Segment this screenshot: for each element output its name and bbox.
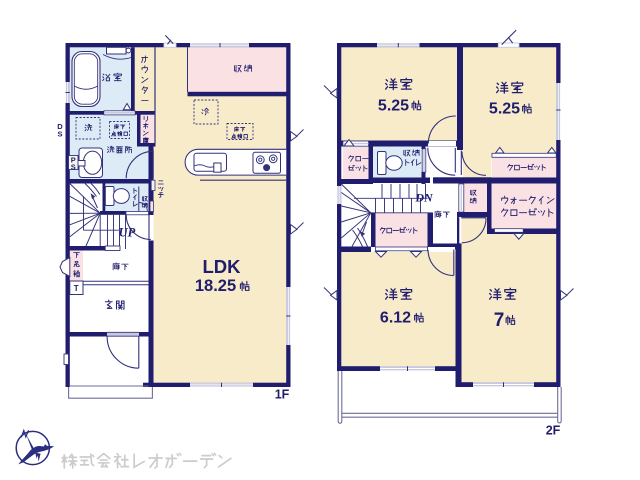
- svg-text:5.25: 5.25: [378, 98, 409, 115]
- svg-text:1F: 1F: [275, 388, 290, 402]
- svg-text:S: S: [57, 130, 62, 139]
- svg-text:18.25: 18.25: [195, 277, 236, 295]
- svg-text:6.12: 6.12: [380, 310, 411, 327]
- svg-text:T: T: [74, 284, 79, 293]
- svg-text:5.25: 5.25: [489, 101, 520, 118]
- svg-text:LDK: LDK: [202, 256, 241, 277]
- svg-text:UP: UP: [119, 226, 136, 240]
- svg-text:2F: 2F: [546, 424, 561, 438]
- svg-text:7: 7: [494, 310, 505, 331]
- svg-text:DN: DN: [414, 191, 434, 205]
- svg-text:S: S: [71, 162, 76, 171]
